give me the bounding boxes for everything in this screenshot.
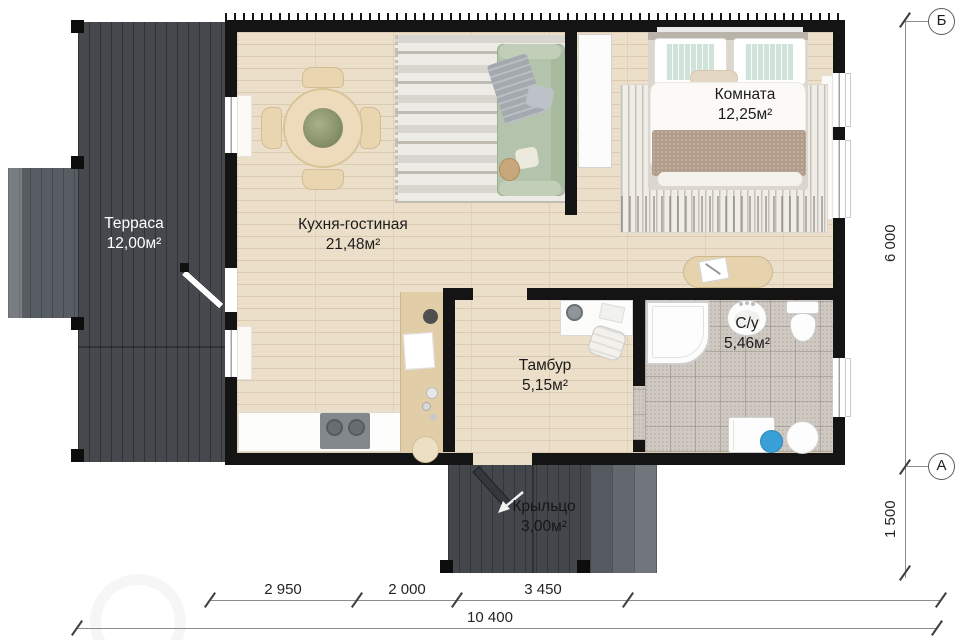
stove-burner [326, 419, 343, 436]
dim-segment-2: 2 000 [357, 581, 457, 598]
bed-foot-sheet [658, 172, 802, 186]
terrace-post [71, 156, 84, 169]
room-name: Крыльцо [484, 497, 604, 517]
room-name: Кухня-гостиная [273, 215, 433, 235]
room-area: 12,00м² [72, 234, 196, 254]
room-label-terrace: Терраса 12,00м² [72, 214, 196, 255]
room-label-bathroom: С/у 5,46м² [687, 314, 807, 355]
window-bathroom-right [833, 358, 845, 417]
room-area: 5,46м² [687, 334, 807, 354]
stove-burner [348, 419, 365, 436]
dim-segment-3: 3 450 [493, 581, 593, 598]
window-sill [237, 326, 252, 380]
dimension-line-total [77, 628, 937, 629]
window-sill [237, 95, 252, 157]
bedroom-rug-band [621, 196, 827, 232]
dining-chair [360, 107, 381, 149]
terrace-post [71, 449, 84, 462]
dim-side-height: 6 000 [882, 207, 902, 279]
terrace-door-tip [180, 263, 189, 272]
wall-living-bedroom [565, 32, 577, 215]
porch-post [440, 560, 453, 573]
terrace-steps [8, 168, 78, 318]
desk-mirror [566, 304, 583, 321]
water-heater [786, 421, 819, 454]
table-centerpiece-plant [303, 108, 343, 148]
sink-faucet-dot [739, 302, 743, 306]
sink-faucet-dot [751, 302, 755, 306]
window-outer-frame [845, 140, 851, 218]
dim-total: 10 400 [430, 609, 550, 626]
axis-marker-bottom: А [928, 453, 955, 480]
counter-bowl [430, 414, 437, 421]
round-tray [412, 436, 439, 463]
dining-chair [261, 107, 282, 149]
counter-pot [423, 309, 438, 324]
room-area: 21,48м² [273, 235, 433, 255]
sofa-back-cushion [551, 50, 565, 190]
laundry-stool [760, 430, 783, 453]
watermark-ring-icon [90, 574, 186, 640]
room-label-bedroom: Комната 12,25м² [665, 85, 825, 126]
room-label-hall: Тамбур 5,15м² [485, 356, 605, 397]
room-name: Терраса [72, 214, 196, 234]
sink-faucet-dot [745, 301, 749, 305]
dimension-line-vertical [905, 18, 906, 578]
window-left-lower [225, 330, 237, 377]
cutting-board [403, 332, 435, 370]
window-left-upper [225, 97, 237, 153]
dim-side-porch: 1 500 [882, 484, 902, 554]
washer-door-line [733, 420, 734, 450]
dimension-line-segments [210, 600, 941, 601]
axis-connector [906, 21, 928, 22]
wall-hall-top-left [443, 288, 473, 300]
porch-post [577, 560, 590, 573]
dining-chair [302, 169, 344, 190]
terrace-post [71, 317, 84, 330]
window-bedroom-right-2 [833, 140, 845, 218]
basket [499, 158, 520, 181]
room-area: 12,25м² [665, 105, 825, 125]
window-bedroom-right-1 [833, 73, 845, 127]
entry-door-opening [473, 453, 532, 465]
axis-marker-top: Б [928, 8, 955, 35]
room-label-porch: Крыльцо 3,00м² [484, 497, 604, 538]
sofa-armrest [499, 181, 561, 196]
wall-bedroom-corridor [527, 288, 833, 300]
room-area: 3,00м² [484, 517, 604, 537]
sofa-armrest [499, 44, 561, 59]
wall-kitchen-hall [443, 300, 455, 452]
bathroom-door-threshold [633, 386, 645, 440]
bed-throw [652, 130, 806, 176]
dining-chair [302, 67, 344, 88]
floor-plan-canvas: Терраса 12,00м² Кухня-гостиная 21,48м² К… [0, 0, 960, 640]
terrace-post [71, 20, 84, 33]
dim-segment-1: 2 950 [233, 581, 333, 598]
room-name: Тамбур [485, 356, 605, 376]
room-name: С/у [687, 314, 807, 334]
room-area: 5,15м² [485, 376, 605, 396]
wall-hall-bath [633, 300, 645, 386]
axis-connector [906, 466, 928, 467]
window-outer-frame [845, 73, 851, 127]
room-label-kitchen-living: Кухня-гостиная 21,48м² [273, 215, 433, 256]
door-opening-terrace [225, 268, 237, 312]
counter-bowl [422, 402, 431, 411]
window-outer-frame [845, 358, 851, 417]
room-name: Комната [665, 85, 825, 105]
counter-bowl [426, 387, 438, 399]
wardrobe [578, 34, 612, 168]
pillow-stripe-panel [745, 44, 793, 80]
wall-hall-bath-stub [633, 440, 645, 452]
